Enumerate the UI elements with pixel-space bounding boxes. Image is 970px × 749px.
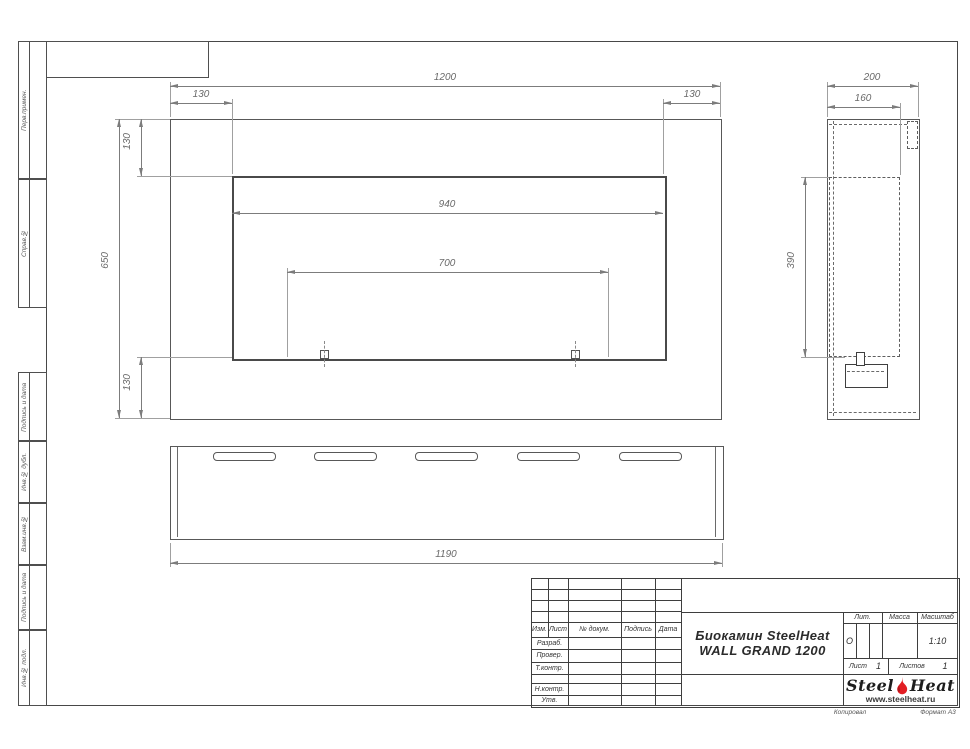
margin-box-inv-podl: Инв.№ подл. <box>18 629 47 706</box>
col-sign: Подпись <box>621 622 655 637</box>
dim-opening-width: 940 <box>439 199 456 210</box>
base-edge-line-left <box>177 447 178 537</box>
extension-line <box>287 268 288 357</box>
extension-line <box>232 99 233 174</box>
top-left-stamp-box <box>46 41 209 78</box>
extension-line <box>663 99 664 174</box>
dim-line-front-top-inset <box>141 119 142 176</box>
vent-slot <box>517 452 580 461</box>
dim-line-front-bottom-inset <box>141 357 142 418</box>
dim-base-length: 1190 <box>435 549 457 560</box>
vent-slot <box>415 452 478 461</box>
title-block-line <box>531 600 681 601</box>
vent-slot <box>619 452 682 461</box>
scale-label: Масштаб <box>917 612 958 623</box>
flame-icon <box>895 677 909 695</box>
logo-steel-text: Steel <box>846 676 894 695</box>
base-edge-line-right <box>715 447 716 537</box>
clip-centerline <box>575 341 576 367</box>
title-block-line <box>856 623 857 658</box>
margin-label: Инв.№ дубл. <box>19 441 30 503</box>
row-checked: Провер. <box>531 649 568 662</box>
row-developed: Разраб. <box>531 637 568 649</box>
margin-label: Перв.примен. <box>19 42 30 179</box>
vent-slot <box>314 452 377 461</box>
extension-line <box>115 418 170 419</box>
dim-side-depth: 200 <box>864 72 881 83</box>
extension-line <box>722 543 723 567</box>
col-doc: № докум. <box>568 622 621 637</box>
title-block-line <box>621 578 622 706</box>
vent-slot <box>213 452 276 461</box>
extension-line <box>608 268 609 357</box>
title-block-line <box>531 611 681 612</box>
document-title-line2: WALL GRAND 1200 <box>699 643 825 658</box>
dim-front-width: 1200 <box>434 72 456 83</box>
side-hidden-bracket <box>907 121 918 149</box>
extension-line <box>137 176 232 177</box>
dim-front-top-inset: 130 <box>122 133 133 150</box>
dim-line-front-height <box>119 119 120 418</box>
side-hidden-line-top <box>829 124 907 125</box>
sheet-label: Лист <box>845 658 871 674</box>
side-hidden-line-bottom <box>829 412 916 413</box>
dim-line-front-width <box>170 86 720 87</box>
margin-box-podpis-data-2: Подпись и дата <box>18 564 47 631</box>
title-block-line <box>888 658 889 674</box>
title-block-line <box>869 623 870 658</box>
dim-front-left-inset: 130 <box>193 89 210 100</box>
dim-line-front-right-inset <box>663 103 720 104</box>
margin-label: Подпись и дата <box>19 565 30 630</box>
dim-line-opening-width <box>232 213 663 214</box>
margin-label: Инв.№ подл. <box>19 630 30 705</box>
dim-line-front-left-inset <box>170 103 232 104</box>
title-block-line <box>531 589 681 590</box>
burner-hidden-line <box>847 371 884 372</box>
dim-front-height: 650 <box>100 252 111 269</box>
margin-label: Подпись и дата <box>19 373 30 441</box>
title-block-line <box>568 578 569 706</box>
dim-burner-span: 700 <box>439 258 456 269</box>
margin-box-perv-primen: Перв.примен. <box>18 41 47 180</box>
document-title-line1: Биокамин SteelHeat <box>695 628 830 643</box>
title-block-line <box>655 578 656 706</box>
dim-line-burner-span <box>287 272 608 273</box>
drawing-sheet: Перв.примен. Справ.№ Подпись и дата Инв.… <box>0 0 970 749</box>
sheets-label: Листов <box>892 658 932 674</box>
extension-line <box>900 103 901 175</box>
dim-side-inner-depth: 160 <box>855 93 872 104</box>
mass-label: Масса <box>882 612 917 623</box>
burner-nozzle <box>856 352 865 366</box>
margin-box-sprav-no: Справ.№ <box>18 178 47 308</box>
copied-label: Копировал <box>815 709 885 716</box>
lit-label: Лит. <box>843 612 882 623</box>
col-date: Дата <box>655 622 681 637</box>
dim-front-bottom-inset: 130 <box>122 374 133 391</box>
row-approved: Утв. <box>531 694 568 706</box>
extension-line <box>720 82 721 117</box>
dim-line-side-inner-depth <box>827 107 900 108</box>
scale-value: 1:10 <box>917 623 958 658</box>
extension-line <box>801 357 845 358</box>
extension-line <box>137 357 232 358</box>
extension-line <box>918 82 919 117</box>
dim-line-side-opening-height <box>805 177 806 357</box>
dim-side-opening-height: 390 <box>786 252 797 269</box>
burner-block <box>845 364 888 388</box>
steelheat-logo: Steel Heat www.steelheat.ru <box>843 674 958 706</box>
margin-box-podpis-data-1: Подпись и дата <box>18 372 47 442</box>
logo-heat-text: Heat <box>910 676 955 695</box>
dim-line-base-length <box>170 563 722 564</box>
sheet-value: 1 <box>871 658 886 674</box>
logo-website: www.steelheat.ru <box>866 694 936 704</box>
dim-front-right-inset: 130 <box>684 89 701 100</box>
side-firebox-hidden <box>829 177 900 357</box>
row-tcontrol: Т.контр. <box>531 662 568 674</box>
margin-label: Справ.№ <box>19 179 30 307</box>
lit-value: О <box>843 623 856 658</box>
margin-box-inv-dubl: Инв.№ дубл. <box>18 440 47 504</box>
margin-label: Взам.инв.№ <box>19 503 30 565</box>
col-list: Лист <box>548 622 568 637</box>
format-label: Формат А3 <box>903 709 970 716</box>
margin-box-vzam-inv: Взам.инв.№ <box>18 502 47 566</box>
dim-line-side-depth <box>827 86 918 87</box>
sheets-value: 1 <box>936 658 954 674</box>
document-title: Биокамин SteelHeat WALL GRAND 1200 <box>682 612 843 674</box>
col-izm: Изм. <box>531 622 548 637</box>
clip-centerline <box>324 341 325 367</box>
